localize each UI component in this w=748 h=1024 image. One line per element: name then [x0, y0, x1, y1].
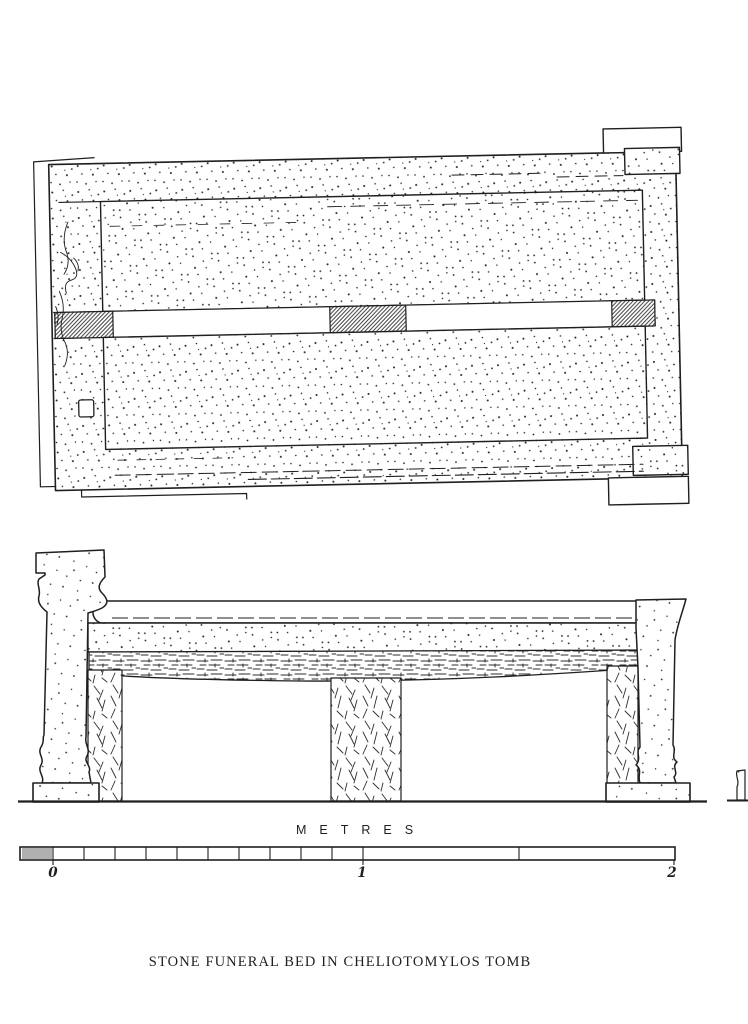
- wall-fragment: [737, 770, 745, 800]
- plan-corner-tenon-bottom: [608, 476, 689, 505]
- plinth-right: [606, 783, 690, 802]
- scale-tick-1: 1: [357, 865, 366, 881]
- plinth-left: [33, 783, 99, 802]
- plan-slab-lower: [103, 326, 647, 449]
- elevation-view: [18, 550, 748, 802]
- plan-support-block-right: [612, 300, 656, 327]
- scale-bar: METRES 0 1 2: [20, 823, 677, 881]
- turned-leg-right: [636, 599, 686, 783]
- plan-corner-block-top: [624, 147, 680, 174]
- scale-bar-body: [20, 847, 675, 860]
- plan-support-block-left: [55, 311, 114, 338]
- pier-center: [331, 678, 401, 801]
- archaeological-drawing: METRES 0 1 2 STONE FUNERAL BED IN CHELIO…: [0, 0, 748, 1024]
- pier-left: [88, 670, 122, 801]
- drawing-title: STONE FUNERAL BED IN CHELIOTOMYLOS TOMB: [149, 954, 531, 970]
- plan-view: [33, 127, 689, 516]
- pier-right: [607, 666, 638, 785]
- plan-cutting-detail: [79, 400, 94, 417]
- plan-support-block-center: [330, 305, 407, 333]
- elevation-bedding-band: [89, 650, 655, 681]
- drawing-sheet: METRES 0 1 2 STONE FUNERAL BED IN CHELIO…: [0, 0, 748, 1024]
- plan-slab-upper: [100, 190, 644, 311]
- elevation-rail: [93, 601, 650, 623]
- scale-tick-0: 0: [48, 865, 58, 881]
- scale-tick-2: 2: [666, 865, 676, 881]
- scale-unit-label: METRES: [296, 823, 426, 837]
- scale-cm-ticks: [23, 848, 51, 859]
- elevation-fascia: [88, 623, 655, 652]
